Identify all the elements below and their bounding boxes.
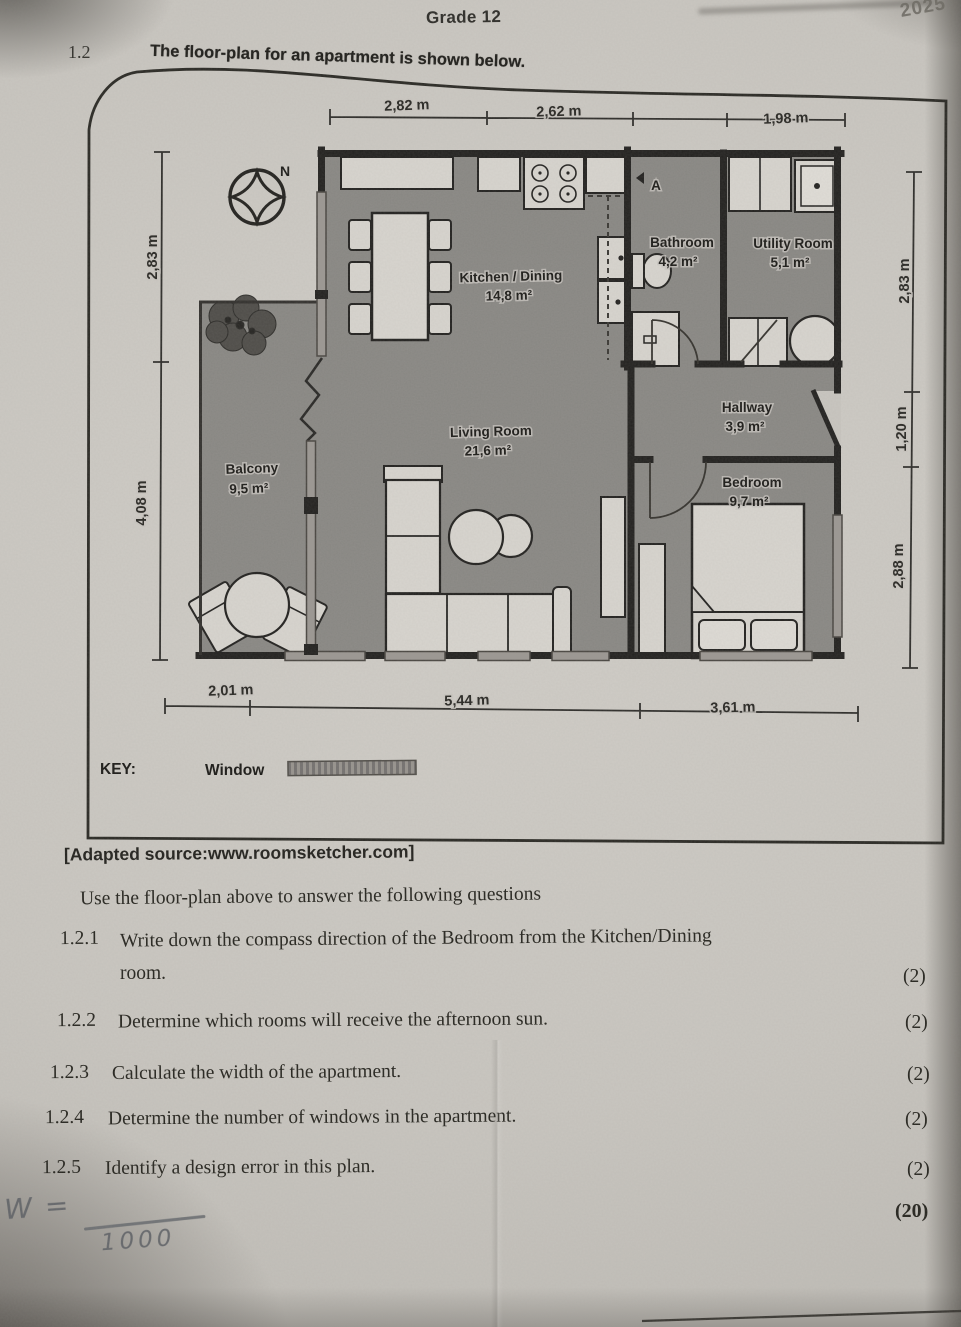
compass-icon xyxy=(230,170,284,224)
key-window-label: Window xyxy=(205,762,265,779)
chair xyxy=(349,262,371,292)
window-balcony-wall xyxy=(307,441,316,655)
wardrobe xyxy=(639,544,665,656)
scanned-exam-page: { "header": { "grade": "Grade 12", "corn… xyxy=(0,0,961,1327)
window-symbol xyxy=(288,760,416,775)
question-text: Calculate the width of the apartment. xyxy=(112,1061,401,1085)
question-text: Determine the number of windows in the a… xyxy=(108,1106,516,1131)
window-kitchen-left xyxy=(317,192,326,356)
tv-cabinet xyxy=(601,497,625,617)
sofa-armrest xyxy=(553,587,571,658)
dining-table xyxy=(372,213,428,340)
question-marks: (2) xyxy=(907,1159,930,1181)
question-text: Identify a design error in this plan. xyxy=(105,1156,375,1180)
dim-bottom-3: 3,61 m xyxy=(710,699,756,716)
page-divider-line xyxy=(642,1311,961,1321)
utility-sink-icon xyxy=(795,160,839,212)
balcony-table xyxy=(225,573,289,637)
window-bottom-3 xyxy=(478,652,530,661)
paper-crease xyxy=(491,1040,503,1327)
chair xyxy=(349,304,371,334)
room-area-living: 21,6 m² xyxy=(464,442,511,458)
source-note: [Adapted source:www.roomsketcher.com] xyxy=(64,841,415,865)
question-number: 1.2.5 xyxy=(42,1157,81,1179)
room-label-hallway: Hallway xyxy=(722,400,773,415)
coffee-table-large xyxy=(449,510,503,564)
window-bottom-2 xyxy=(385,652,445,661)
question-text-line2: room. xyxy=(120,963,166,985)
question-number: 1.2.2 xyxy=(57,1010,96,1032)
dim-right-1: 2,83 m xyxy=(897,258,913,303)
question-marks: (2) xyxy=(903,966,926,988)
dim-top-1: 2,82 m xyxy=(384,97,430,115)
kitchen-counter xyxy=(341,157,453,189)
window-bottom-4 xyxy=(552,652,609,661)
chair xyxy=(429,220,451,250)
dim-top-2: 2,62 m xyxy=(536,103,582,120)
kitchen-counter-2 xyxy=(478,157,520,191)
chair xyxy=(429,304,451,334)
question-marks: (2) xyxy=(907,1064,930,1086)
question-number: 1.2.3 xyxy=(50,1062,89,1084)
room-label-balcony: Balcony xyxy=(225,460,278,477)
key-label: KEY: xyxy=(100,761,136,778)
dim-bottom-1: 2,01 m xyxy=(208,682,254,700)
handwritten-denominator: 1000 xyxy=(100,1225,176,1256)
compass-north-label: N xyxy=(280,163,290,179)
room-label-utility: Utility Room xyxy=(753,236,833,251)
dim-top-3: 1,98 m xyxy=(763,110,809,128)
total-marks: (20) xyxy=(895,1200,928,1223)
room-area-bathroom: 4,2 m² xyxy=(658,254,698,269)
room-area-bedroom: 9,7 m² xyxy=(729,494,769,509)
room-label-kitchen: Kitchen / Dining xyxy=(459,268,562,286)
question-text: Determine which rooms will receive the a… xyxy=(118,1008,548,1033)
washing-machine-icon xyxy=(790,316,840,366)
room-label-bedroom: Bedroom xyxy=(722,475,781,490)
dim-right-2: 1,20 m xyxy=(894,406,910,451)
chair xyxy=(429,262,451,292)
question-number: 1.2.1 xyxy=(60,928,99,950)
chair xyxy=(349,220,371,250)
room-area-balcony: 9,5 m² xyxy=(229,480,269,496)
room-area-hallway: 3,9 m² xyxy=(725,419,765,434)
stove-icon xyxy=(524,157,584,209)
handwritten-w: W = xyxy=(3,1188,71,1226)
bed-icon xyxy=(692,504,804,658)
dim-left-2: 4,08 m xyxy=(134,480,150,525)
dining-set xyxy=(349,213,451,340)
question-number: 1.2.4 xyxy=(45,1107,84,1129)
window-bedroom-right xyxy=(833,515,842,637)
room-label-bathroom: Bathroom xyxy=(650,235,714,250)
question-marks: (2) xyxy=(905,1109,928,1131)
dim-right-3: 2,88 m xyxy=(891,543,907,588)
room-area-kitchen: 14,8 m² xyxy=(485,287,532,303)
handwritten-note: W = 1000 xyxy=(0,1175,243,1282)
sofa-horizontal xyxy=(386,594,566,656)
window-bedroom-bottom xyxy=(700,652,812,661)
dim-bottom-2: 5,44 m xyxy=(444,692,490,709)
room-label-living: Living Room xyxy=(450,423,532,440)
question-marks: (2) xyxy=(905,1012,928,1034)
bathroom-marker: A xyxy=(651,178,661,193)
dim-line-left xyxy=(152,152,170,660)
dim-left-1: 2,83 m xyxy=(145,234,161,279)
room-area-utility: 5,1 m² xyxy=(770,255,810,270)
window-bottom-1 xyxy=(285,652,365,661)
kitchen-corner-counter xyxy=(586,157,628,193)
